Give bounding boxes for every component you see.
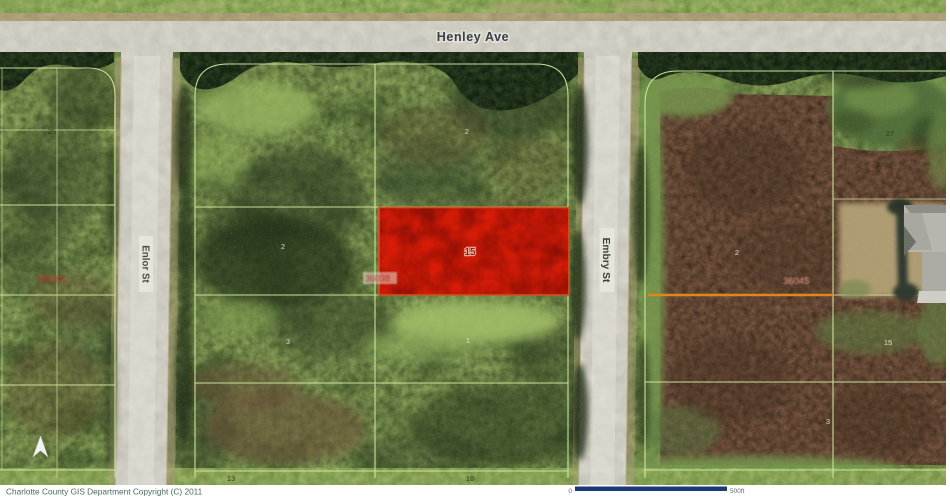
svg-text:36038: 36038 bbox=[365, 274, 390, 284]
svg-text:500ft: 500ft bbox=[730, 488, 745, 495]
svg-text:Enlor St: Enlor St bbox=[140, 245, 151, 283]
svg-text:1: 1 bbox=[735, 127, 739, 136]
svg-text:15: 15 bbox=[884, 338, 892, 347]
svg-text:3: 3 bbox=[286, 337, 290, 346]
svg-text:Charlotte County GIS Departmen: Charlotte County GIS Department Copyrigh… bbox=[6, 487, 203, 497]
svg-text:3: 3 bbox=[826, 417, 830, 426]
svg-text:36045: 36045 bbox=[783, 276, 809, 287]
svg-text:2: 2 bbox=[281, 242, 285, 251]
svg-text:2: 2 bbox=[465, 127, 469, 136]
svg-text:1: 1 bbox=[466, 336, 470, 345]
svg-text:Henley Ave: Henley Ave bbox=[437, 30, 509, 44]
svg-text:0: 0 bbox=[568, 488, 572, 495]
svg-text:2: 2 bbox=[735, 248, 739, 257]
svg-text:Embry St: Embry St bbox=[600, 238, 611, 283]
svg-text:15: 15 bbox=[464, 247, 476, 258]
svg-text:36041: 36041 bbox=[37, 273, 66, 285]
svg-text:13: 13 bbox=[227, 474, 235, 483]
svg-text:25: 25 bbox=[48, 127, 56, 136]
svg-text:18: 18 bbox=[466, 474, 474, 483]
svg-text:27: 27 bbox=[886, 129, 894, 138]
